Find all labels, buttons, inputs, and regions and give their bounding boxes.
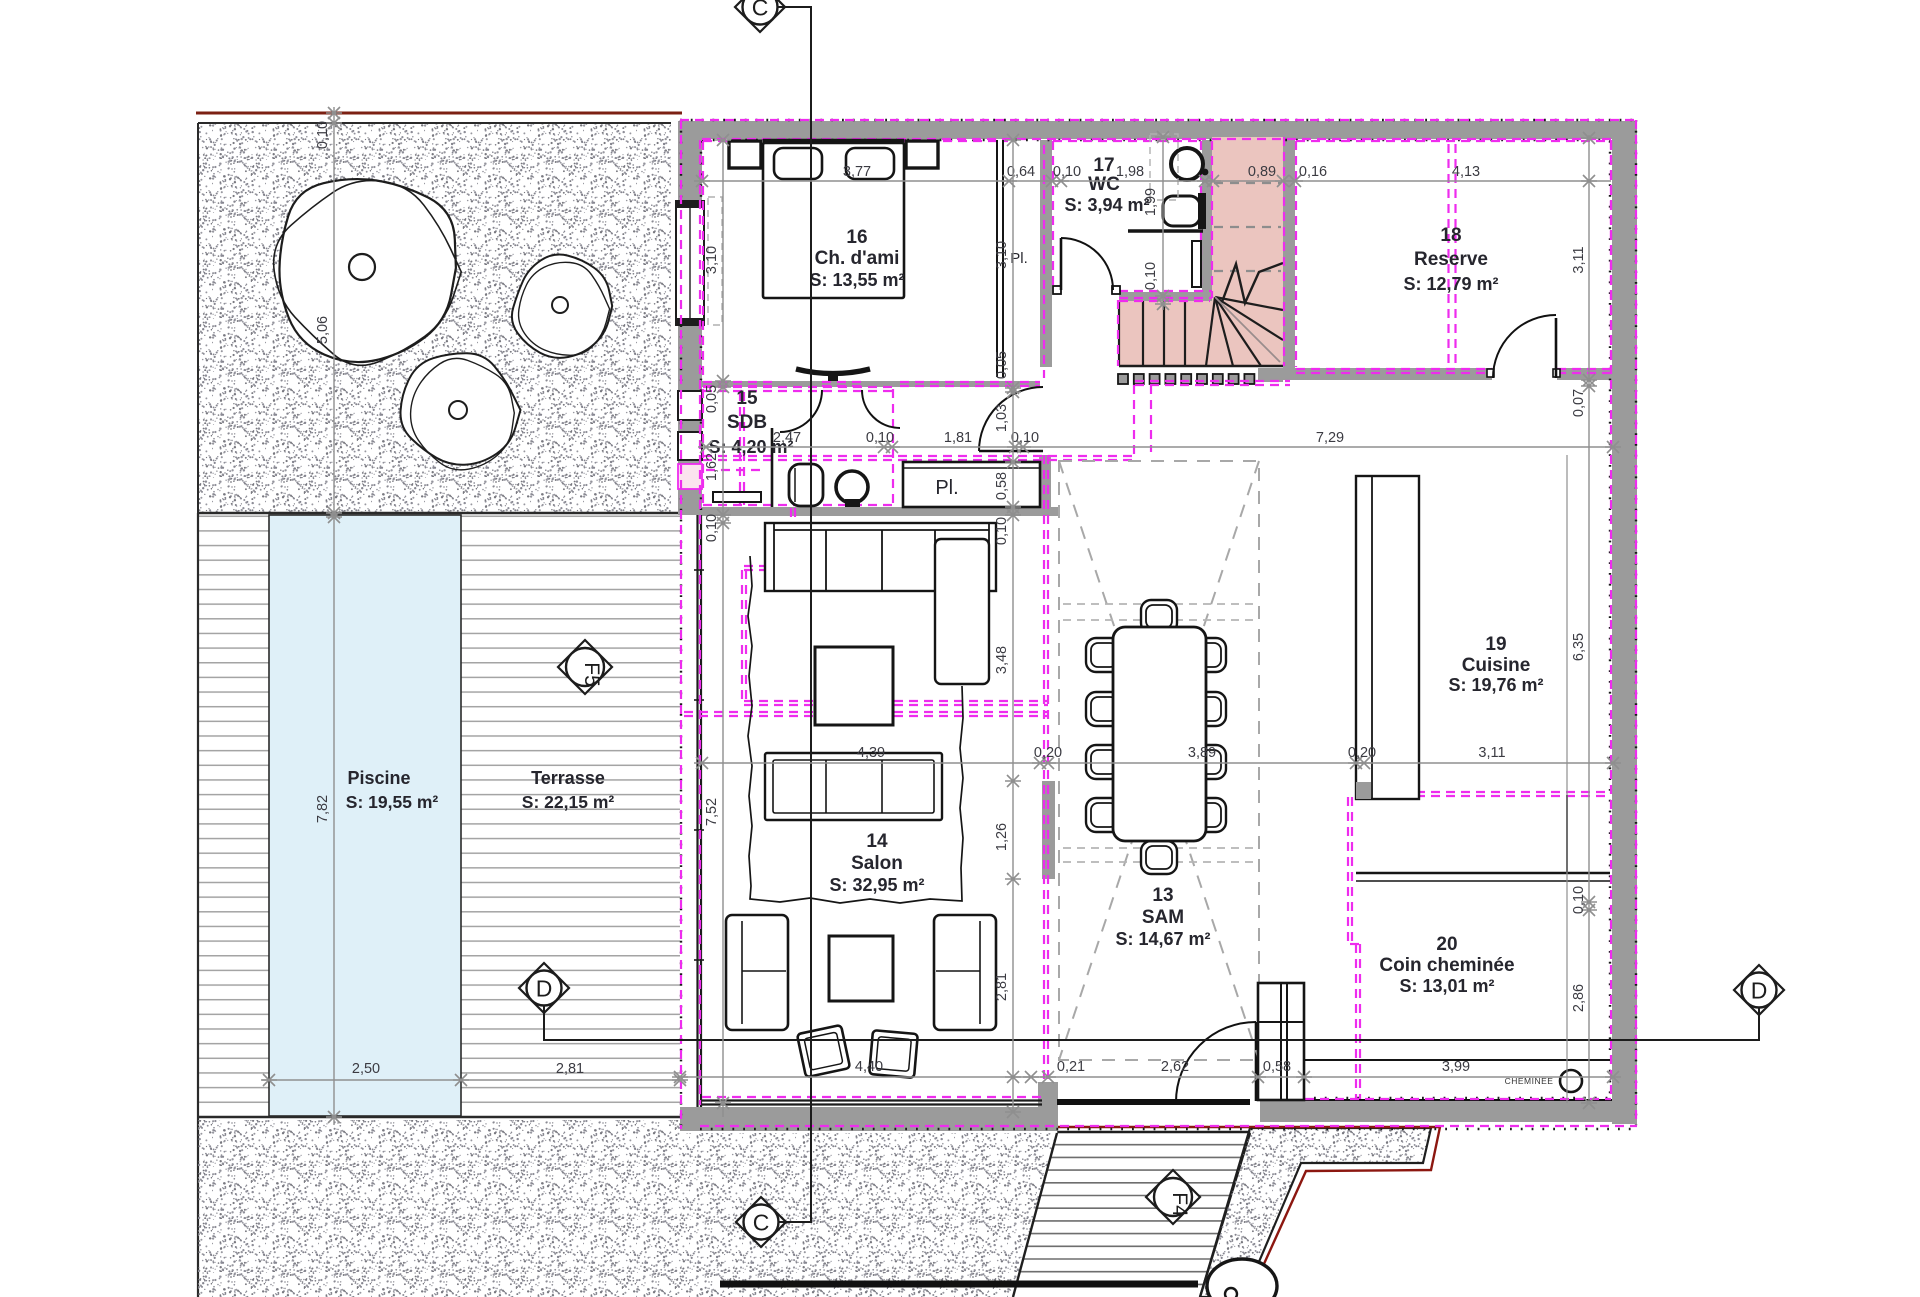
svg-text:1,62: 1,62 [704, 453, 720, 481]
svg-text:Pl.: Pl. [935, 477, 958, 499]
svg-text:2,47: 2,47 [773, 430, 801, 446]
svg-text:4,13: 4,13 [1452, 164, 1480, 180]
svg-text:7,52: 7,52 [704, 798, 720, 826]
svg-text:Salon: Salon [851, 853, 903, 874]
svg-text:0,10: 0,10 [1011, 430, 1039, 446]
svg-text:0,10: 0,10 [1571, 886, 1587, 914]
svg-text:F4: F4 [1168, 1192, 1191, 1217]
svg-text:1,98: 1,98 [1116, 164, 1144, 180]
svg-text:4,40: 4,40 [855, 1059, 883, 1075]
svg-text:1,99: 1,99 [1143, 188, 1159, 216]
svg-text:Piscine: Piscine [347, 768, 410, 788]
svg-text:0,58: 0,58 [994, 472, 1010, 500]
svg-text:2,62: 2,62 [1161, 1059, 1189, 1075]
svg-text:0,20: 0,20 [1034, 745, 1062, 761]
svg-text:0,58: 0,58 [1263, 1059, 1291, 1075]
svg-text:17: 17 [1093, 155, 1114, 176]
svg-text:0,16: 0,16 [1299, 164, 1327, 180]
svg-text:2,50: 2,50 [352, 1061, 380, 1077]
svg-text:3,89: 3,89 [1188, 745, 1216, 761]
svg-text:0,07: 0,07 [1571, 389, 1587, 417]
svg-text:S: 14,67 m²: S: 14,67 m² [1115, 929, 1210, 949]
svg-text:S: 12,79 m²: S: 12,79 m² [1403, 274, 1498, 294]
svg-text:5,06: 5,06 [315, 316, 331, 344]
svg-text:3,48: 3,48 [994, 646, 1010, 674]
svg-text:0,64: 0,64 [1007, 164, 1035, 180]
svg-text:S: 22,15 m²: S: 22,15 m² [522, 792, 615, 812]
svg-text:3,99: 3,99 [1442, 1059, 1470, 1075]
svg-text:2,81: 2,81 [994, 973, 1010, 1001]
svg-text:3,11: 3,11 [1571, 246, 1587, 273]
svg-text:0,89: 0,89 [1248, 164, 1276, 180]
svg-text:3,10: 3,10 [994, 241, 1010, 269]
svg-text:14: 14 [866, 831, 888, 852]
svg-text:Cuisine: Cuisine [1462, 655, 1531, 676]
svg-text:0,10: 0,10 [704, 514, 720, 542]
svg-text:S: 13,55 m²: S: 13,55 m² [809, 270, 904, 290]
svg-text:S: 32,95 m²: S: 32,95 m² [829, 875, 924, 895]
svg-text:3,11: 3,11 [1478, 745, 1505, 761]
svg-text:19: 19 [1485, 634, 1506, 655]
svg-text:SDB: SDB [727, 412, 767, 433]
svg-text:Ch. d'ami: Ch. d'ami [815, 248, 900, 269]
svg-text:2,86: 2,86 [1571, 984, 1587, 1012]
svg-text:0,20: 0,20 [1348, 745, 1376, 761]
svg-text:S: 19,76 m²: S: 19,76 m² [1448, 675, 1543, 695]
svg-text:F5: F5 [580, 662, 603, 687]
svg-text:2,81: 2,81 [556, 1061, 584, 1077]
svg-text:0,21: 0,21 [1057, 1059, 1085, 1075]
svg-text:1,81: 1,81 [944, 430, 972, 446]
svg-text:S: 3,94 m²: S: 3,94 m² [1064, 195, 1149, 215]
svg-text:C: C [752, 0, 769, 20]
svg-text:4,39: 4,39 [857, 745, 885, 761]
svg-text:1,26: 1,26 [994, 823, 1010, 851]
svg-text:0,05: 0,05 [704, 385, 720, 413]
svg-text:S: 13,01 m²: S: 13,01 m² [1399, 976, 1494, 996]
svg-text:S: 19,55 m²: S: 19,55 m² [346, 792, 439, 812]
svg-text:0,05: 0,05 [994, 351, 1010, 379]
svg-text:SAM: SAM [1142, 907, 1184, 928]
svg-text:1,03: 1,03 [994, 404, 1010, 432]
svg-text:D: D [1751, 977, 1768, 1003]
svg-text:3,77: 3,77 [843, 164, 871, 180]
svg-text:7,82: 7,82 [315, 795, 331, 823]
svg-text:0,10: 0,10 [866, 430, 894, 446]
svg-text:3,10: 3,10 [704, 246, 720, 274]
svg-text:18: 18 [1440, 225, 1461, 246]
svg-text:0,10: 0,10 [1143, 262, 1159, 290]
svg-text:20: 20 [1436, 934, 1457, 955]
svg-text:C: C [753, 1209, 770, 1235]
svg-text:15: 15 [736, 388, 758, 409]
svg-text:7,29: 7,29 [1316, 430, 1344, 446]
svg-text:0,10: 0,10 [315, 121, 331, 149]
svg-text:16: 16 [846, 227, 867, 248]
svg-text:Reserve: Reserve [1414, 249, 1488, 270]
svg-text:6,35: 6,35 [1571, 633, 1587, 661]
svg-text:D: D [536, 975, 553, 1001]
svg-text:Coin cheminée: Coin cheminée [1379, 955, 1514, 976]
svg-text:0,10: 0,10 [994, 517, 1010, 545]
svg-text:Terrasse: Terrasse [531, 768, 605, 788]
svg-text:13: 13 [1152, 885, 1173, 906]
svg-text:0,10: 0,10 [1053, 164, 1081, 180]
